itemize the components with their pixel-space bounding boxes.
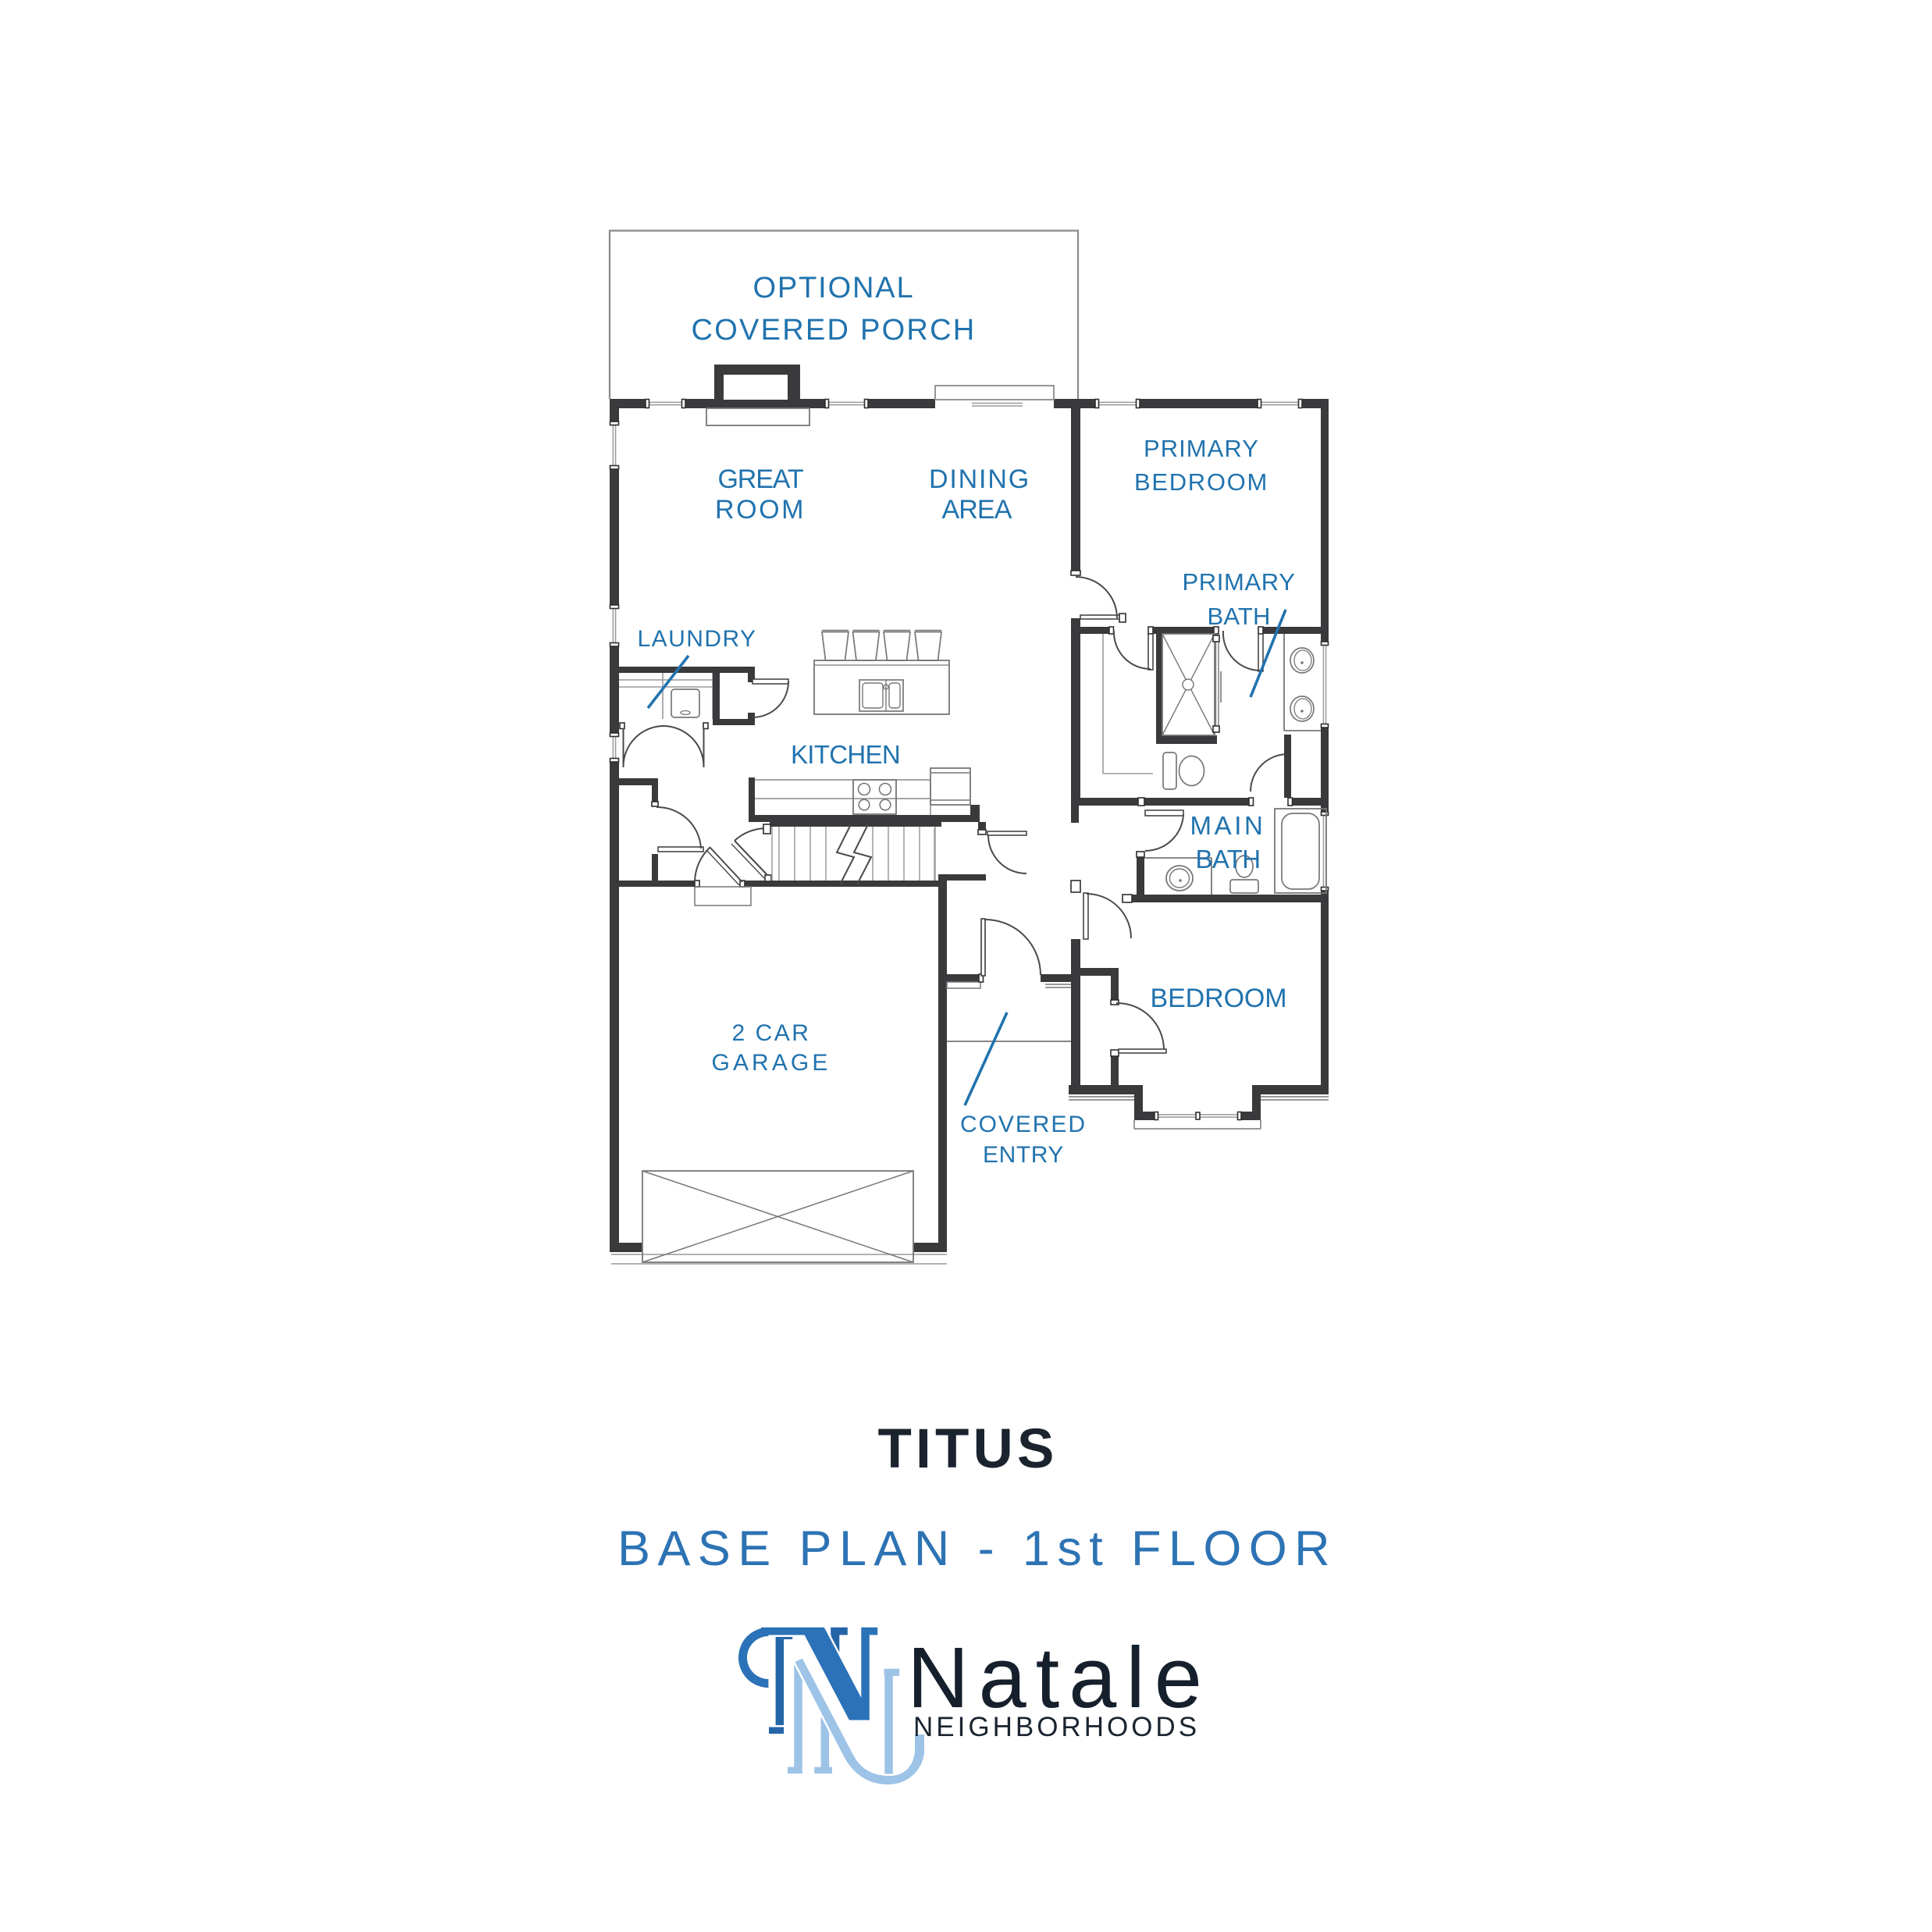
svg-text:MAIN: MAIN [1190, 811, 1266, 840]
svg-text:OPTIONAL: OPTIONAL [753, 272, 915, 304]
svg-text:NEIGHBORHOODS: NEIGHBORHOODS [913, 1712, 1200, 1742]
svg-text:PRIMARY: PRIMARY [1182, 568, 1295, 596]
svg-text:AREA: AREA [941, 495, 1012, 525]
svg-text:ENTRY: ENTRY [983, 1142, 1064, 1168]
svg-text:BEDROOM: BEDROOM [1151, 984, 1287, 1013]
svg-text:BATH: BATH [1195, 845, 1260, 873]
svg-text:BEDROOM: BEDROOM [1134, 468, 1268, 496]
svg-text:BASE PLAN - 1st FLOOR: BASE PLAN - 1st FLOOR [617, 1521, 1337, 1576]
svg-text:PRIMARY: PRIMARY [1144, 435, 1259, 462]
svg-text:2 CAR: 2 CAR [732, 1020, 811, 1046]
svg-text:BATH: BATH [1207, 603, 1270, 630]
svg-text:KITCHEN: KITCHEN [791, 740, 900, 769]
svg-text:LAUNDRY: LAUNDRY [638, 626, 757, 652]
svg-text:GARAGE: GARAGE [712, 1050, 831, 1076]
svg-text:COVERED: COVERED [960, 1112, 1087, 1137]
svg-text:TITUS: TITUS [878, 1418, 1059, 1480]
svg-text:ROOM: ROOM [715, 495, 806, 525]
svg-text:DINING: DINING [929, 464, 1030, 494]
svg-text:COVERED PORCH: COVERED PORCH [692, 314, 977, 347]
svg-text:GREAT: GREAT [717, 464, 802, 494]
